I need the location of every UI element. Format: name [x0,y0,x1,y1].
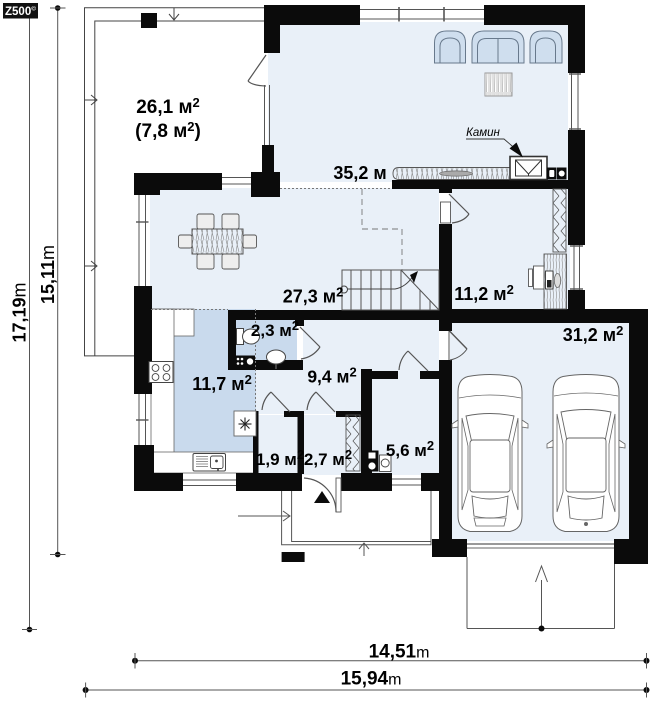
svg-text:17,19m: 17,19m [10,282,30,342]
svg-text:35,2 м: 35,2 м [333,163,386,183]
svg-text:15,11m: 15,11m [38,245,58,304]
svg-text:11,2 м2: 11,2 м2 [454,282,514,304]
svg-text:14,51m: 14,51m [369,642,430,663]
svg-text:27,3 м2: 27,3 м2 [283,285,344,307]
svg-text:Камин: Камин [466,127,500,139]
svg-text:9,4 м2: 9,4 м2 [307,365,356,387]
svg-text:26,1 м2: 26,1 м2 [136,95,200,118]
svg-text:15,94m: 15,94m [341,669,402,690]
svg-text:11,7 м2: 11,7 м2 [192,372,252,394]
svg-text:31,2 м2: 31,2 м2 [563,323,624,345]
